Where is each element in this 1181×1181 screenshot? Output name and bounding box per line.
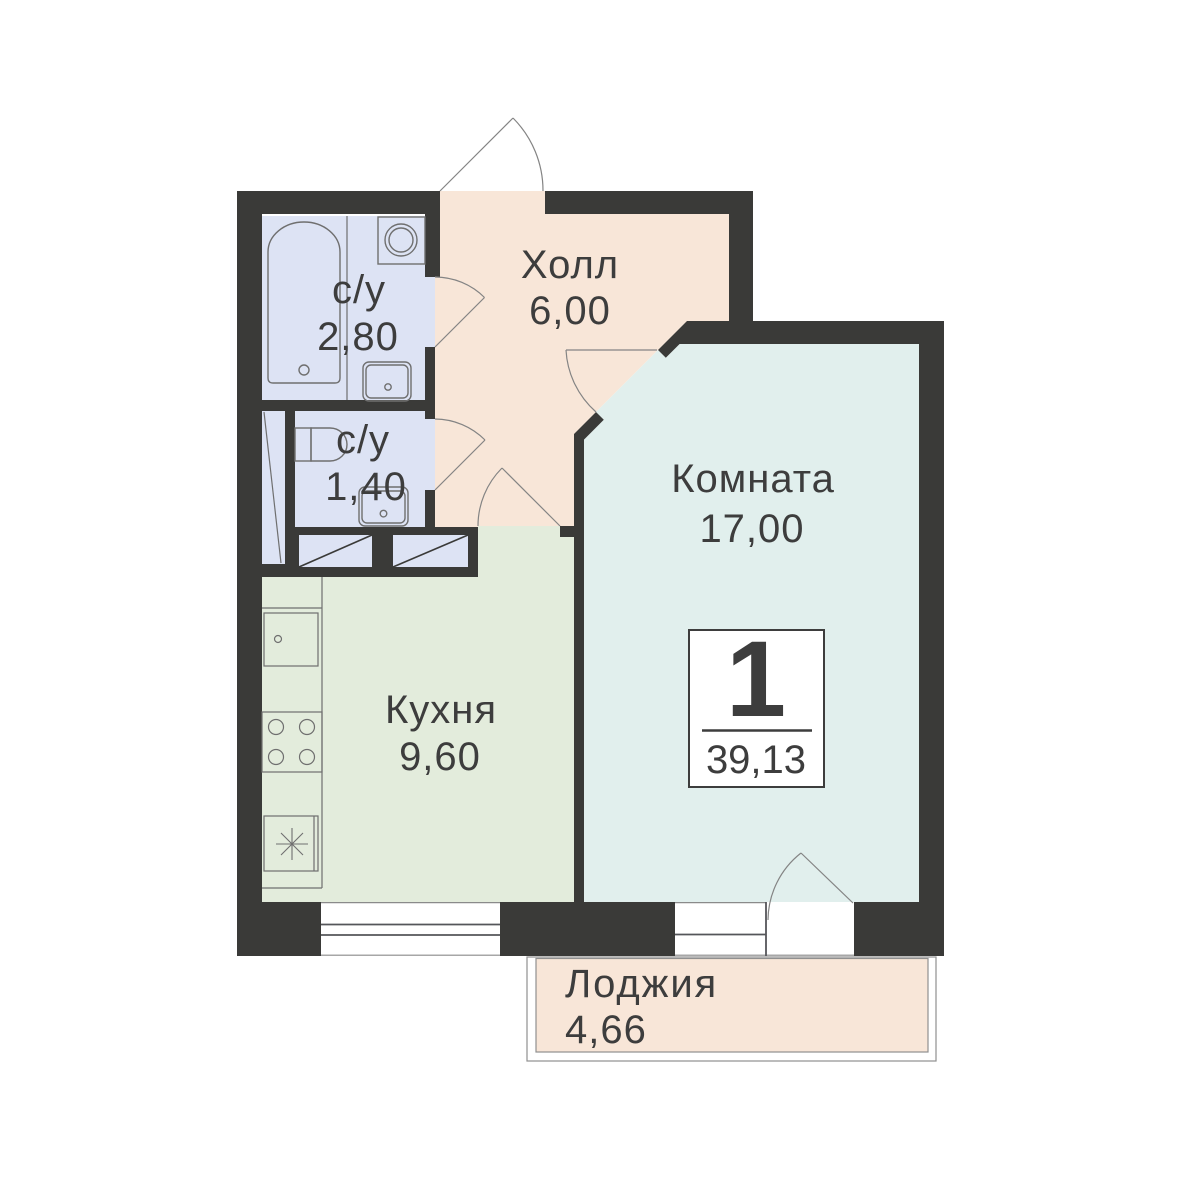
svg-text:с/у: с/у — [336, 418, 390, 462]
svg-text:2,80: 2,80 — [317, 315, 399, 359]
svg-text:1,40: 1,40 — [325, 465, 407, 509]
svg-text:1: 1 — [726, 618, 786, 739]
svg-text:Лоджия: Лоджия — [565, 962, 718, 1006]
svg-text:4,66: 4,66 — [565, 1008, 647, 1052]
svg-text:Комната: Комната — [671, 457, 835, 501]
svg-text:Холл: Холл — [521, 243, 619, 287]
svg-text:6,00: 6,00 — [529, 289, 611, 333]
svg-text:9,60: 9,60 — [399, 735, 481, 779]
svg-text:Кухня: Кухня — [385, 688, 497, 732]
svg-text:с/у: с/у — [332, 268, 386, 312]
svg-text:17,00: 17,00 — [699, 507, 804, 551]
svg-text:39,13: 39,13 — [706, 738, 806, 782]
